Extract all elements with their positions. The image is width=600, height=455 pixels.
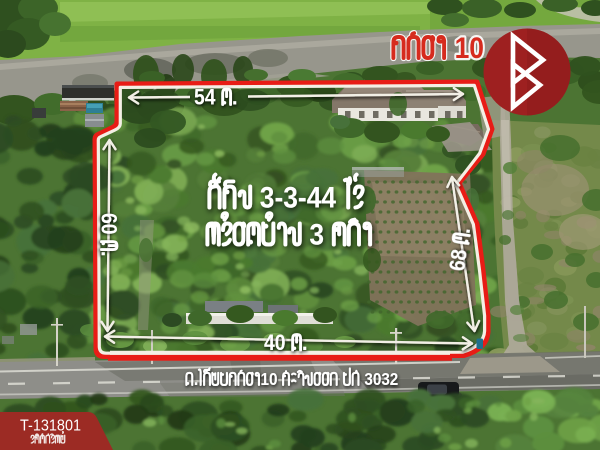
- svg-text:3-3-44: 3-3-44: [260, 182, 344, 215]
- svg-text:.: .: [302, 330, 308, 355]
- svg-text:.: .: [194, 369, 199, 389]
- svg-text:68: 68: [444, 242, 473, 272]
- svg-text:10: 10: [261, 369, 282, 389]
- svg-text:40: 40: [264, 330, 291, 355]
- svg-text:T-131801: T-131801: [20, 418, 81, 435]
- svg-text:.: .: [97, 251, 122, 257]
- svg-text:.: .: [232, 85, 238, 110]
- svg-text:3: 3: [309, 219, 331, 252]
- svg-text:3032: 3032: [364, 369, 398, 389]
- svg-text:60: 60: [97, 213, 122, 240]
- svg-text:54: 54: [194, 85, 221, 110]
- svg-text:10: 10: [455, 32, 484, 65]
